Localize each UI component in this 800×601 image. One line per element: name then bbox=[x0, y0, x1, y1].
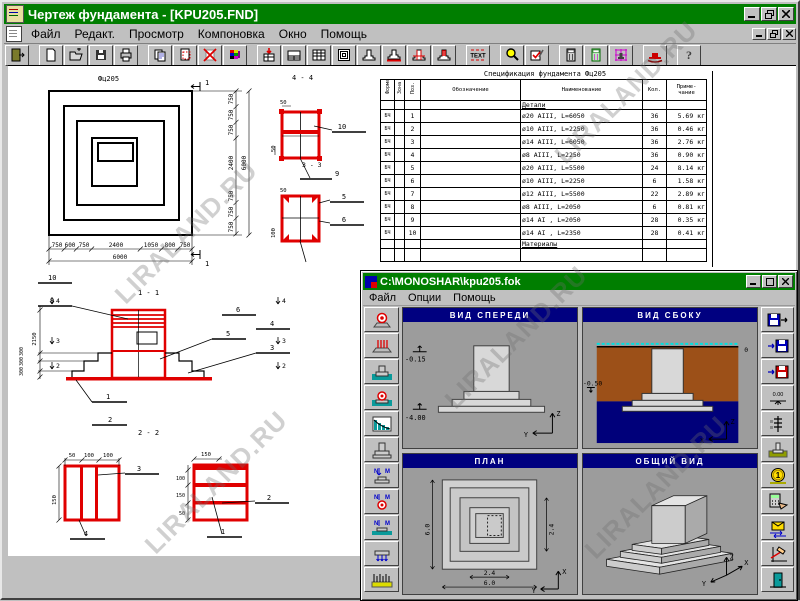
panel-front-title: ВИД СПЕРЕДИ bbox=[403, 308, 577, 322]
ground-zero-label: 0 bbox=[744, 346, 748, 354]
svg-text:M: M bbox=[385, 469, 390, 475]
title-bar: Чертеж фундамента - [KPU205.FND] bbox=[4, 4, 796, 24]
new-file-button[interactable] bbox=[39, 45, 63, 66]
svg-text:3: 3 bbox=[137, 465, 141, 473]
svg-text:N: N bbox=[374, 521, 378, 527]
settlement-chart-icon bbox=[370, 414, 394, 434]
svg-text:Z: Z bbox=[730, 418, 734, 426]
table-row: БЧ4ø8 AIII, L=2250360.90 кг bbox=[381, 149, 707, 162]
table-row: БЧ8ø8 AIII, L=205060.81 кг bbox=[381, 201, 707, 214]
svg-text:N: N bbox=[374, 495, 378, 501]
menu-bar: Файл Редакт. Просмотр Компоновка Окно По… bbox=[4, 24, 796, 44]
svg-text:4: 4 bbox=[282, 297, 286, 305]
help-button[interactable]: ? bbox=[677, 45, 701, 66]
table-import-icon bbox=[261, 47, 277, 63]
print-button[interactable] bbox=[114, 45, 138, 66]
callout-5: 5 bbox=[319, 193, 364, 203]
child-menu-help[interactable]: Помощь bbox=[447, 292, 502, 304]
document-system-icon[interactable] bbox=[6, 26, 22, 42]
table-row: БЧ7ø12 AIII, L=5500222.89 кг bbox=[381, 188, 707, 201]
child-window-title: C:\MONOSHAR\kpu205.fok bbox=[380, 276, 745, 288]
side-level-label: -0.50 bbox=[583, 379, 602, 387]
svg-text:800: 800 bbox=[165, 242, 176, 249]
edit-check-button[interactable] bbox=[525, 45, 549, 66]
svg-text:2: 2 bbox=[108, 416, 112, 424]
pencil-axes-icon bbox=[767, 544, 789, 564]
svg-text:6.0: 6.0 bbox=[484, 579, 496, 587]
svg-text:6: 6 bbox=[342, 216, 346, 224]
mdi-restore-button[interactable] bbox=[767, 28, 781, 40]
child-exit-button[interactable] bbox=[761, 567, 794, 592]
loads-nm-punch-icon: NM bbox=[370, 492, 394, 512]
new-document-icon bbox=[43, 47, 59, 63]
soil-profile-button[interactable] bbox=[364, 567, 399, 592]
spec-header-row: Формат Зона Поз. Обозначение Наименовани… bbox=[381, 80, 707, 101]
calculate-button[interactable] bbox=[761, 489, 794, 514]
svg-text:3: 3 bbox=[56, 337, 60, 345]
svg-text:150: 150 bbox=[201, 452, 211, 458]
printer-icon bbox=[118, 47, 134, 63]
svg-text:750: 750 bbox=[79, 242, 90, 249]
child-minimize-button[interactable] bbox=[746, 275, 761, 288]
svg-text:9: 9 bbox=[50, 297, 54, 305]
svg-text:6000: 6000 bbox=[113, 254, 128, 261]
restore-button[interactable] bbox=[761, 7, 777, 21]
svg-text:?: ? bbox=[686, 48, 692, 62]
svg-text:3: 3 bbox=[282, 337, 286, 345]
sheet-border-line bbox=[712, 71, 713, 267]
rebar-layout-button[interactable] bbox=[364, 333, 399, 358]
spec-table-a-button[interactable] bbox=[282, 45, 306, 66]
zoom-tool-button[interactable] bbox=[500, 45, 524, 66]
svg-text:750: 750 bbox=[228, 206, 235, 217]
front-view-drawing: -0.15 -4.00 Z Y bbox=[403, 322, 577, 448]
exchange-button[interactable] bbox=[761, 515, 794, 540]
plan-label: Фц205 bbox=[98, 75, 119, 83]
panel-front-view[interactable]: ВИД СПЕРЕДИ -0.15 -4.00 bbox=[402, 307, 578, 449]
svg-text:750: 750 bbox=[228, 124, 235, 135]
table-row: БЧ6ø10 AIII, L=225061.58 кг bbox=[381, 175, 707, 188]
level-top-label: -0.15 bbox=[405, 356, 426, 364]
results-foundation-icon bbox=[646, 47, 664, 63]
calculator-button[interactable] bbox=[559, 45, 583, 66]
child-close-button[interactable] bbox=[778, 275, 793, 288]
elevation-dims bbox=[38, 306, 99, 380]
foundation-soil-button[interactable] bbox=[364, 359, 399, 384]
close-button[interactable] bbox=[778, 7, 794, 21]
calculator-hand-icon bbox=[767, 492, 789, 512]
svg-text:4 - 4: 4 - 4 bbox=[292, 74, 313, 82]
table-row: БЧ2ø10 AIII, L=2250360.46 кг bbox=[381, 123, 707, 136]
table-rows-icon bbox=[286, 47, 302, 63]
paste-fragment-icon bbox=[177, 47, 193, 63]
foundation-elevation-icon bbox=[361, 47, 377, 63]
svg-text:1: 1 bbox=[775, 471, 780, 480]
ground-section-button[interactable] bbox=[761, 437, 794, 462]
svg-text:Z: Z bbox=[556, 410, 560, 418]
svg-text:2: 2 bbox=[267, 494, 271, 502]
delete-fragment-button[interactable] bbox=[198, 45, 222, 66]
calculator-icon bbox=[563, 47, 579, 63]
svg-text:2.4: 2.4 bbox=[547, 524, 555, 536]
close-icon bbox=[782, 10, 790, 18]
calculator-green-icon bbox=[588, 47, 604, 63]
punch-in-soil-icon bbox=[370, 388, 394, 408]
cost-button[interactable]: 1 bbox=[761, 463, 794, 488]
svg-text:2.4: 2.4 bbox=[484, 569, 496, 577]
main-window: Чертеж фундамента - [KPU205.FND] Файл Ре… bbox=[0, 0, 800, 600]
elevation-view-button[interactable] bbox=[357, 45, 381, 66]
coin-icon: 1 bbox=[767, 466, 789, 486]
elevation-base-button[interactable] bbox=[382, 45, 406, 66]
question-icon: ? bbox=[681, 47, 697, 63]
level-bottom-label: -4.00 bbox=[405, 414, 426, 422]
child-left-toolbar: NM NM NM bbox=[364, 307, 399, 593]
text-tool-button[interactable]: TEXT bbox=[466, 45, 490, 66]
svg-text:750: 750 bbox=[228, 109, 235, 120]
svg-text:2150: 2150 bbox=[32, 332, 38, 345]
table-row: БЧ3ø14 AIII, L=6050362.76 кг bbox=[381, 136, 707, 149]
svg-text:3: 3 bbox=[270, 344, 274, 352]
svg-text:50: 50 bbox=[280, 188, 287, 194]
table-row: БЧ5ø20 AIII, L=5500248.14 кг bbox=[381, 162, 707, 175]
minimize-icon bbox=[748, 16, 755, 18]
svg-text:5: 5 bbox=[226, 330, 230, 338]
foundation-redlayers-icon bbox=[436, 47, 452, 63]
svg-text:6: 6 bbox=[236, 306, 240, 314]
color-palette-icon bbox=[227, 47, 243, 63]
general-view-drawing: Z X Y bbox=[583, 468, 757, 594]
child-maximize-button[interactable] bbox=[762, 275, 777, 288]
piles-button[interactable] bbox=[364, 541, 399, 566]
menu-layout[interactable]: Компоновка bbox=[191, 26, 272, 42]
exit-door-icon bbox=[9, 47, 25, 63]
table-row: БЧ1ø20 AIII, L=6050365.69 кг bbox=[381, 110, 707, 123]
plan-view-button[interactable] bbox=[332, 45, 356, 66]
svg-text:100: 100 bbox=[84, 453, 94, 459]
checkbox-pencil-icon bbox=[529, 47, 545, 63]
svg-text:100: 100 bbox=[103, 453, 113, 459]
floppy-import-red-icon bbox=[767, 362, 789, 382]
svg-text:50: 50 bbox=[179, 511, 185, 517]
svg-text:M: M bbox=[385, 521, 390, 527]
svg-text:Y: Y bbox=[702, 580, 707, 588]
concentric-squares-icon bbox=[336, 47, 352, 63]
side-view-drawing: -0.50 0 Z X bbox=[583, 322, 757, 448]
panel-plan-view[interactable]: ПЛАН bbox=[402, 453, 578, 595]
copy-icon bbox=[152, 47, 168, 63]
svg-text:50: 50 bbox=[271, 145, 277, 152]
copy-fragment-button[interactable] bbox=[148, 45, 172, 66]
rebar-pins-icon bbox=[370, 336, 394, 356]
panel-general-view[interactable]: ОБЩИЙ ВИД bbox=[582, 453, 758, 595]
child-body: NM NM NM 0.00 1 bbox=[363, 305, 795, 598]
panel-side-view[interactable]: ВИД СБОКУ -0.50 bbox=[582, 307, 758, 449]
svg-text:10: 10 bbox=[48, 274, 56, 282]
menu-file[interactable]: Файл bbox=[24, 26, 68, 42]
svg-text:0.00: 0.00 bbox=[772, 392, 783, 398]
foundation-magenta-grid-icon bbox=[613, 47, 629, 63]
svg-text:50: 50 bbox=[280, 100, 287, 106]
svg-text:6.0: 6.0 bbox=[424, 524, 432, 536]
loads-nm-button[interactable]: NM bbox=[364, 463, 399, 488]
svg-text:1050: 1050 bbox=[144, 242, 159, 249]
calculator-color-button[interactable] bbox=[584, 45, 608, 66]
svg-text:300: 300 bbox=[19, 367, 25, 376]
panel-general-title: ОБЩИЙ ВИД bbox=[583, 454, 757, 468]
elevation-section-drawing: 1 - 1 2150 300 300 300 43 bbox=[10, 261, 320, 441]
save-file-button[interactable] bbox=[89, 45, 113, 66]
svg-text:100: 100 bbox=[271, 228, 277, 238]
loads-nm-soil-icon: NM bbox=[370, 518, 394, 538]
svg-text:300: 300 bbox=[19, 357, 25, 366]
column-foundation-button[interactable] bbox=[364, 437, 399, 462]
callout-6: 6 bbox=[319, 216, 364, 225]
svg-text:Y: Y bbox=[532, 587, 537, 594]
loads-nm-soil-button[interactable]: NM bbox=[364, 515, 399, 540]
svg-text:750: 750 bbox=[180, 242, 191, 249]
magnifier-icon bbox=[504, 47, 520, 63]
svg-text:1: 1 bbox=[106, 393, 110, 401]
toolbar: TEXT ? bbox=[4, 44, 796, 66]
foundation-redbase-icon bbox=[386, 47, 402, 63]
specification-table: Спецификация фундамента Фц205 Формат Зон… bbox=[380, 70, 710, 262]
minimize-button[interactable] bbox=[744, 7, 760, 21]
window-title: Чертеж фундамента - [KPU205.FND] bbox=[28, 7, 743, 22]
svg-text:2: 2 bbox=[56, 362, 60, 370]
save-result-button[interactable] bbox=[761, 307, 794, 332]
open-folder-icon bbox=[68, 47, 84, 63]
text-icon: TEXT bbox=[469, 47, 487, 63]
svg-text:4: 4 bbox=[270, 320, 274, 328]
loads-nm-punch-button[interactable]: NM bbox=[364, 489, 399, 514]
column-foundation-icon bbox=[370, 440, 394, 460]
svg-text:M: M bbox=[385, 495, 390, 501]
svg-text:X: X bbox=[744, 559, 749, 567]
exchange-icon bbox=[767, 518, 789, 538]
svg-text:750: 750 bbox=[228, 190, 235, 201]
foundation-redgrid-icon bbox=[411, 47, 427, 63]
floppy-import-blue-icon bbox=[767, 336, 789, 356]
panel-plan-title: ПЛАН bbox=[403, 454, 577, 468]
table-grid-icon bbox=[311, 47, 327, 63]
ground-section-icon bbox=[767, 440, 789, 460]
elevation-grid-button[interactable] bbox=[407, 45, 431, 66]
svg-text:2: 2 bbox=[282, 362, 286, 370]
child-window: C:\MONOSHAR\kpu205.fok Файл Опции Помощь… bbox=[360, 270, 798, 601]
settlement-chart-button[interactable] bbox=[364, 411, 399, 436]
punch-soil-button[interactable] bbox=[364, 385, 399, 410]
svg-text:750: 750 bbox=[228, 93, 235, 104]
load-result-button[interactable] bbox=[761, 359, 794, 384]
svg-text:600: 600 bbox=[65, 242, 76, 249]
svg-text:4: 4 bbox=[56, 297, 60, 305]
elevation-layers-button[interactable] bbox=[432, 45, 456, 66]
axis-indicator: Z Y bbox=[524, 410, 561, 439]
app-icon bbox=[6, 5, 24, 23]
level-mark-button[interactable]: 0.00 bbox=[761, 385, 794, 410]
svg-text:Y: Y bbox=[524, 431, 529, 439]
spec-section-row: Материалы bbox=[381, 240, 707, 249]
import-spec-button[interactable] bbox=[257, 45, 281, 66]
door-exit-icon bbox=[767, 570, 789, 590]
child-title-bar: C:\MONOSHAR\kpu205.fok bbox=[363, 273, 795, 290]
panel-side-title: ВИД СБОКУ bbox=[583, 308, 757, 322]
child-menu-file[interactable]: Файл bbox=[363, 292, 402, 304]
child-app-icon bbox=[365, 276, 377, 288]
foundation-grid-button[interactable] bbox=[609, 45, 633, 66]
level-mark-icon: 0.00 bbox=[767, 388, 789, 408]
svg-text:10: 10 bbox=[338, 123, 346, 131]
child-right-toolbar: 0.00 1 bbox=[761, 307, 794, 593]
svg-text:150: 150 bbox=[176, 493, 185, 499]
svg-text:100: 100 bbox=[176, 476, 185, 482]
svg-text:5: 5 bbox=[342, 193, 346, 201]
menu-edit[interactable]: Редакт. bbox=[68, 26, 122, 42]
foundation-plan-drawing: Фц205 1 1 750 75 bbox=[30, 69, 262, 269]
svg-text:1 - 1: 1 - 1 bbox=[138, 289, 159, 297]
spec-empty-row bbox=[381, 249, 707, 262]
svg-text:TEXT: TEXT bbox=[470, 54, 486, 60]
section-mark-top: 1 bbox=[191, 79, 209, 91]
rebar-marks-button[interactable] bbox=[761, 411, 794, 436]
table-row: БЧ10ø14 AI , L=2350280.41 кг bbox=[381, 227, 707, 240]
mdi-minimize-button[interactable] bbox=[752, 28, 766, 40]
punch-target-icon bbox=[370, 310, 394, 330]
svg-text:9: 9 bbox=[335, 170, 339, 178]
svg-text:300: 300 bbox=[19, 347, 25, 356]
menu-window[interactable]: Окно bbox=[272, 26, 314, 42]
floppy-export-icon bbox=[767, 310, 789, 330]
svg-text:X: X bbox=[562, 568, 567, 576]
punch-check-button[interactable] bbox=[364, 307, 399, 332]
spec-table-b-button[interactable] bbox=[307, 45, 331, 66]
svg-text:750: 750 bbox=[228, 221, 235, 232]
svg-text:2400: 2400 bbox=[228, 155, 235, 170]
exit-app-button[interactable] bbox=[5, 45, 29, 66]
svg-text:1: 1 bbox=[205, 79, 209, 87]
section-details-top-drawing: 4 - 4 50 50 10 3 - 3 9 bbox=[254, 66, 382, 266]
svg-text:50: 50 bbox=[69, 453, 76, 459]
piles-icon bbox=[370, 544, 394, 564]
child-menu-options[interactable]: Опции bbox=[402, 292, 447, 304]
table-row: БЧ9ø14 AI , L=2050280.35 кг bbox=[381, 214, 707, 227]
spec-title: Спецификация фундамента Фц205 bbox=[380, 70, 710, 78]
menu-view[interactable]: Просмотр bbox=[122, 26, 191, 42]
section-cut-marks: 432 432 bbox=[50, 297, 286, 370]
svg-text:1: 1 bbox=[221, 528, 225, 536]
svg-text:6000: 6000 bbox=[241, 155, 248, 170]
results-view-button[interactable] bbox=[643, 45, 667, 66]
mdi-close-button[interactable] bbox=[782, 28, 796, 40]
svg-text:150: 150 bbox=[52, 495, 58, 505]
spec-section-row: Детали bbox=[381, 101, 707, 110]
svg-text:Z: Z bbox=[729, 553, 733, 561]
svg-text:2400: 2400 bbox=[109, 242, 124, 249]
svg-text:4: 4 bbox=[84, 530, 88, 538]
delete-cross-icon bbox=[202, 47, 218, 63]
rebar-marks-icon bbox=[767, 414, 789, 434]
child-menu-bar: Файл Опции Помощь bbox=[363, 290, 795, 306]
open-file-button[interactable] bbox=[64, 45, 88, 66]
load-data-button[interactable] bbox=[761, 333, 794, 358]
section-details-bottom-drawing: 50 100 100 150 3 4 150 100 150 50 bbox=[22, 435, 322, 555]
plan-view-drawing: 6.0 2.4 2.4 6.0 X Y bbox=[403, 468, 577, 594]
paste-fragment-button[interactable] bbox=[173, 45, 197, 66]
colors-button[interactable] bbox=[223, 45, 247, 66]
foundation-in-soil-icon bbox=[370, 362, 394, 382]
draw-axes-button[interactable] bbox=[761, 541, 794, 566]
menu-help[interactable]: Помощь bbox=[314, 26, 374, 42]
axis-indicator: X Y bbox=[532, 568, 567, 594]
save-floppy-icon bbox=[93, 47, 109, 63]
svg-text:750: 750 bbox=[52, 242, 63, 249]
soil-profile-icon bbox=[370, 570, 394, 590]
callout-10: 10 bbox=[314, 123, 366, 132]
view-panels: ВИД СПЕРЕДИ -0.15 -4.00 bbox=[402, 307, 758, 595]
loads-nm-icon: NM bbox=[370, 466, 394, 486]
